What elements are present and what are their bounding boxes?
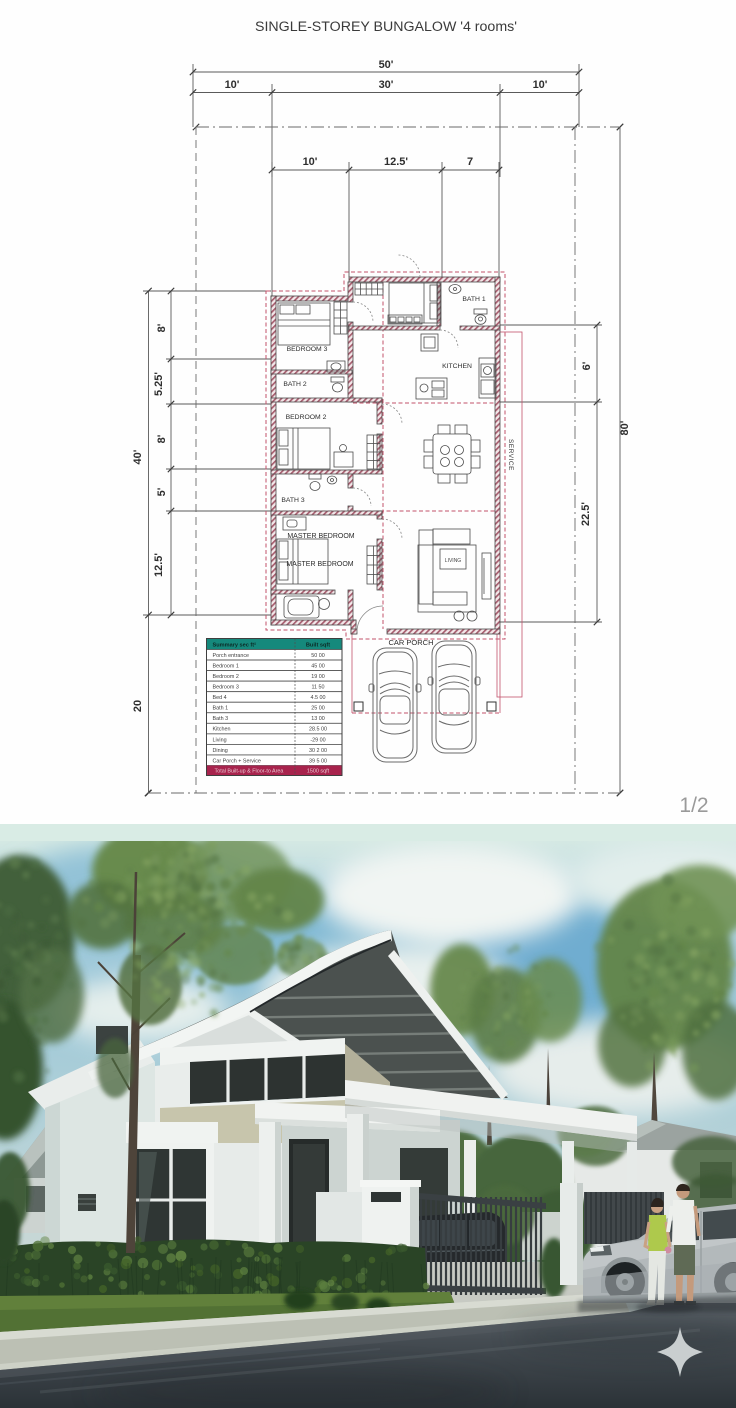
svg-text:39 5 00: 39 5 00 — [309, 758, 327, 764]
svg-text:8': 8' — [156, 434, 168, 443]
svg-text:30': 30' — [379, 79, 394, 91]
svg-text:1500 sqft: 1500 sqft — [307, 769, 330, 775]
svg-text:10': 10' — [533, 79, 548, 91]
svg-text:BEDROOM 2: BEDROOM 2 — [286, 414, 327, 421]
svg-text:12.5': 12.5' — [153, 553, 165, 577]
svg-text:Car Porch + Service: Car Porch + Service — [213, 758, 261, 764]
svg-text:Kitchen: Kitchen — [213, 727, 231, 733]
svg-text:SINGLE-STOREY BUNGALOW '4 room: SINGLE-STOREY BUNGALOW '4 rooms' — [255, 19, 517, 35]
svg-text:BATH 2: BATH 2 — [283, 381, 307, 388]
svg-text:BATH 1: BATH 1 — [462, 296, 486, 303]
svg-text:Living: Living — [213, 737, 227, 743]
svg-text:Bedroom 2: Bedroom 2 — [213, 674, 239, 680]
svg-text:Bedroom 1: Bedroom 1 — [213, 663, 239, 669]
svg-text:Bath 1: Bath 1 — [213, 706, 229, 712]
svg-text:BATH 3: BATH 3 — [281, 497, 305, 504]
svg-text:11 50: 11 50 — [311, 685, 324, 691]
svg-text:80': 80' — [619, 420, 631, 435]
svg-text:KITCHEN: KITCHEN — [442, 363, 472, 370]
svg-text:LIVING: LIVING — [445, 558, 462, 564]
svg-text:Bed 4: Bed 4 — [213, 695, 227, 701]
svg-text:10': 10' — [225, 79, 240, 91]
svg-text:5.25': 5.25' — [153, 372, 165, 396]
svg-text:25 00: 25 00 — [311, 706, 325, 712]
svg-text:Dining: Dining — [213, 748, 228, 754]
svg-text:6': 6' — [581, 361, 593, 370]
svg-text:BEDROOM 3: BEDROOM 3 — [287, 346, 328, 353]
svg-text:Summary sec ft²: Summary sec ft² — [213, 642, 257, 649]
svg-text:28.5 00: 28.5 00 — [309, 727, 327, 733]
svg-text:-29 00: -29 00 — [310, 737, 325, 743]
svg-text:50 00: 50 00 — [311, 653, 325, 659]
svg-text:CAR PORCH: CAR PORCH — [388, 638, 433, 647]
svg-text:45 00: 45 00 — [311, 663, 325, 669]
svg-text:4.5 00: 4.5 00 — [311, 695, 326, 701]
svg-text:Porch entrance: Porch entrance — [213, 653, 250, 659]
svg-text:12.5': 12.5' — [384, 156, 408, 168]
svg-text:50': 50' — [379, 59, 394, 71]
svg-text:10': 10' — [303, 156, 318, 168]
svg-text:40': 40' — [132, 449, 144, 464]
svg-text:1/2: 1/2 — [679, 794, 708, 817]
svg-text:30 2 00: 30 2 00 — [309, 748, 327, 754]
svg-text:Bath 3: Bath 3 — [213, 716, 229, 722]
svg-text:Total Built-up & Floor-to Area: Total Built-up & Floor-to Area — [215, 769, 284, 775]
svg-text:20: 20 — [132, 700, 144, 712]
svg-text:SERVICE: SERVICE — [507, 439, 514, 471]
svg-text:7: 7 — [467, 156, 473, 168]
svg-text:8': 8' — [156, 323, 168, 332]
svg-text:13 00: 13 00 — [311, 716, 325, 722]
svg-text:19 00: 19 00 — [311, 674, 325, 680]
svg-text:Bedroom 3: Bedroom 3 — [213, 685, 239, 691]
svg-text:Built sqft: Built sqft — [306, 643, 330, 649]
svg-text:5': 5' — [156, 487, 168, 496]
svg-text:22.5': 22.5' — [580, 502, 592, 526]
svg-text:MASTER BEDROOM: MASTER BEDROOM — [286, 561, 353, 568]
